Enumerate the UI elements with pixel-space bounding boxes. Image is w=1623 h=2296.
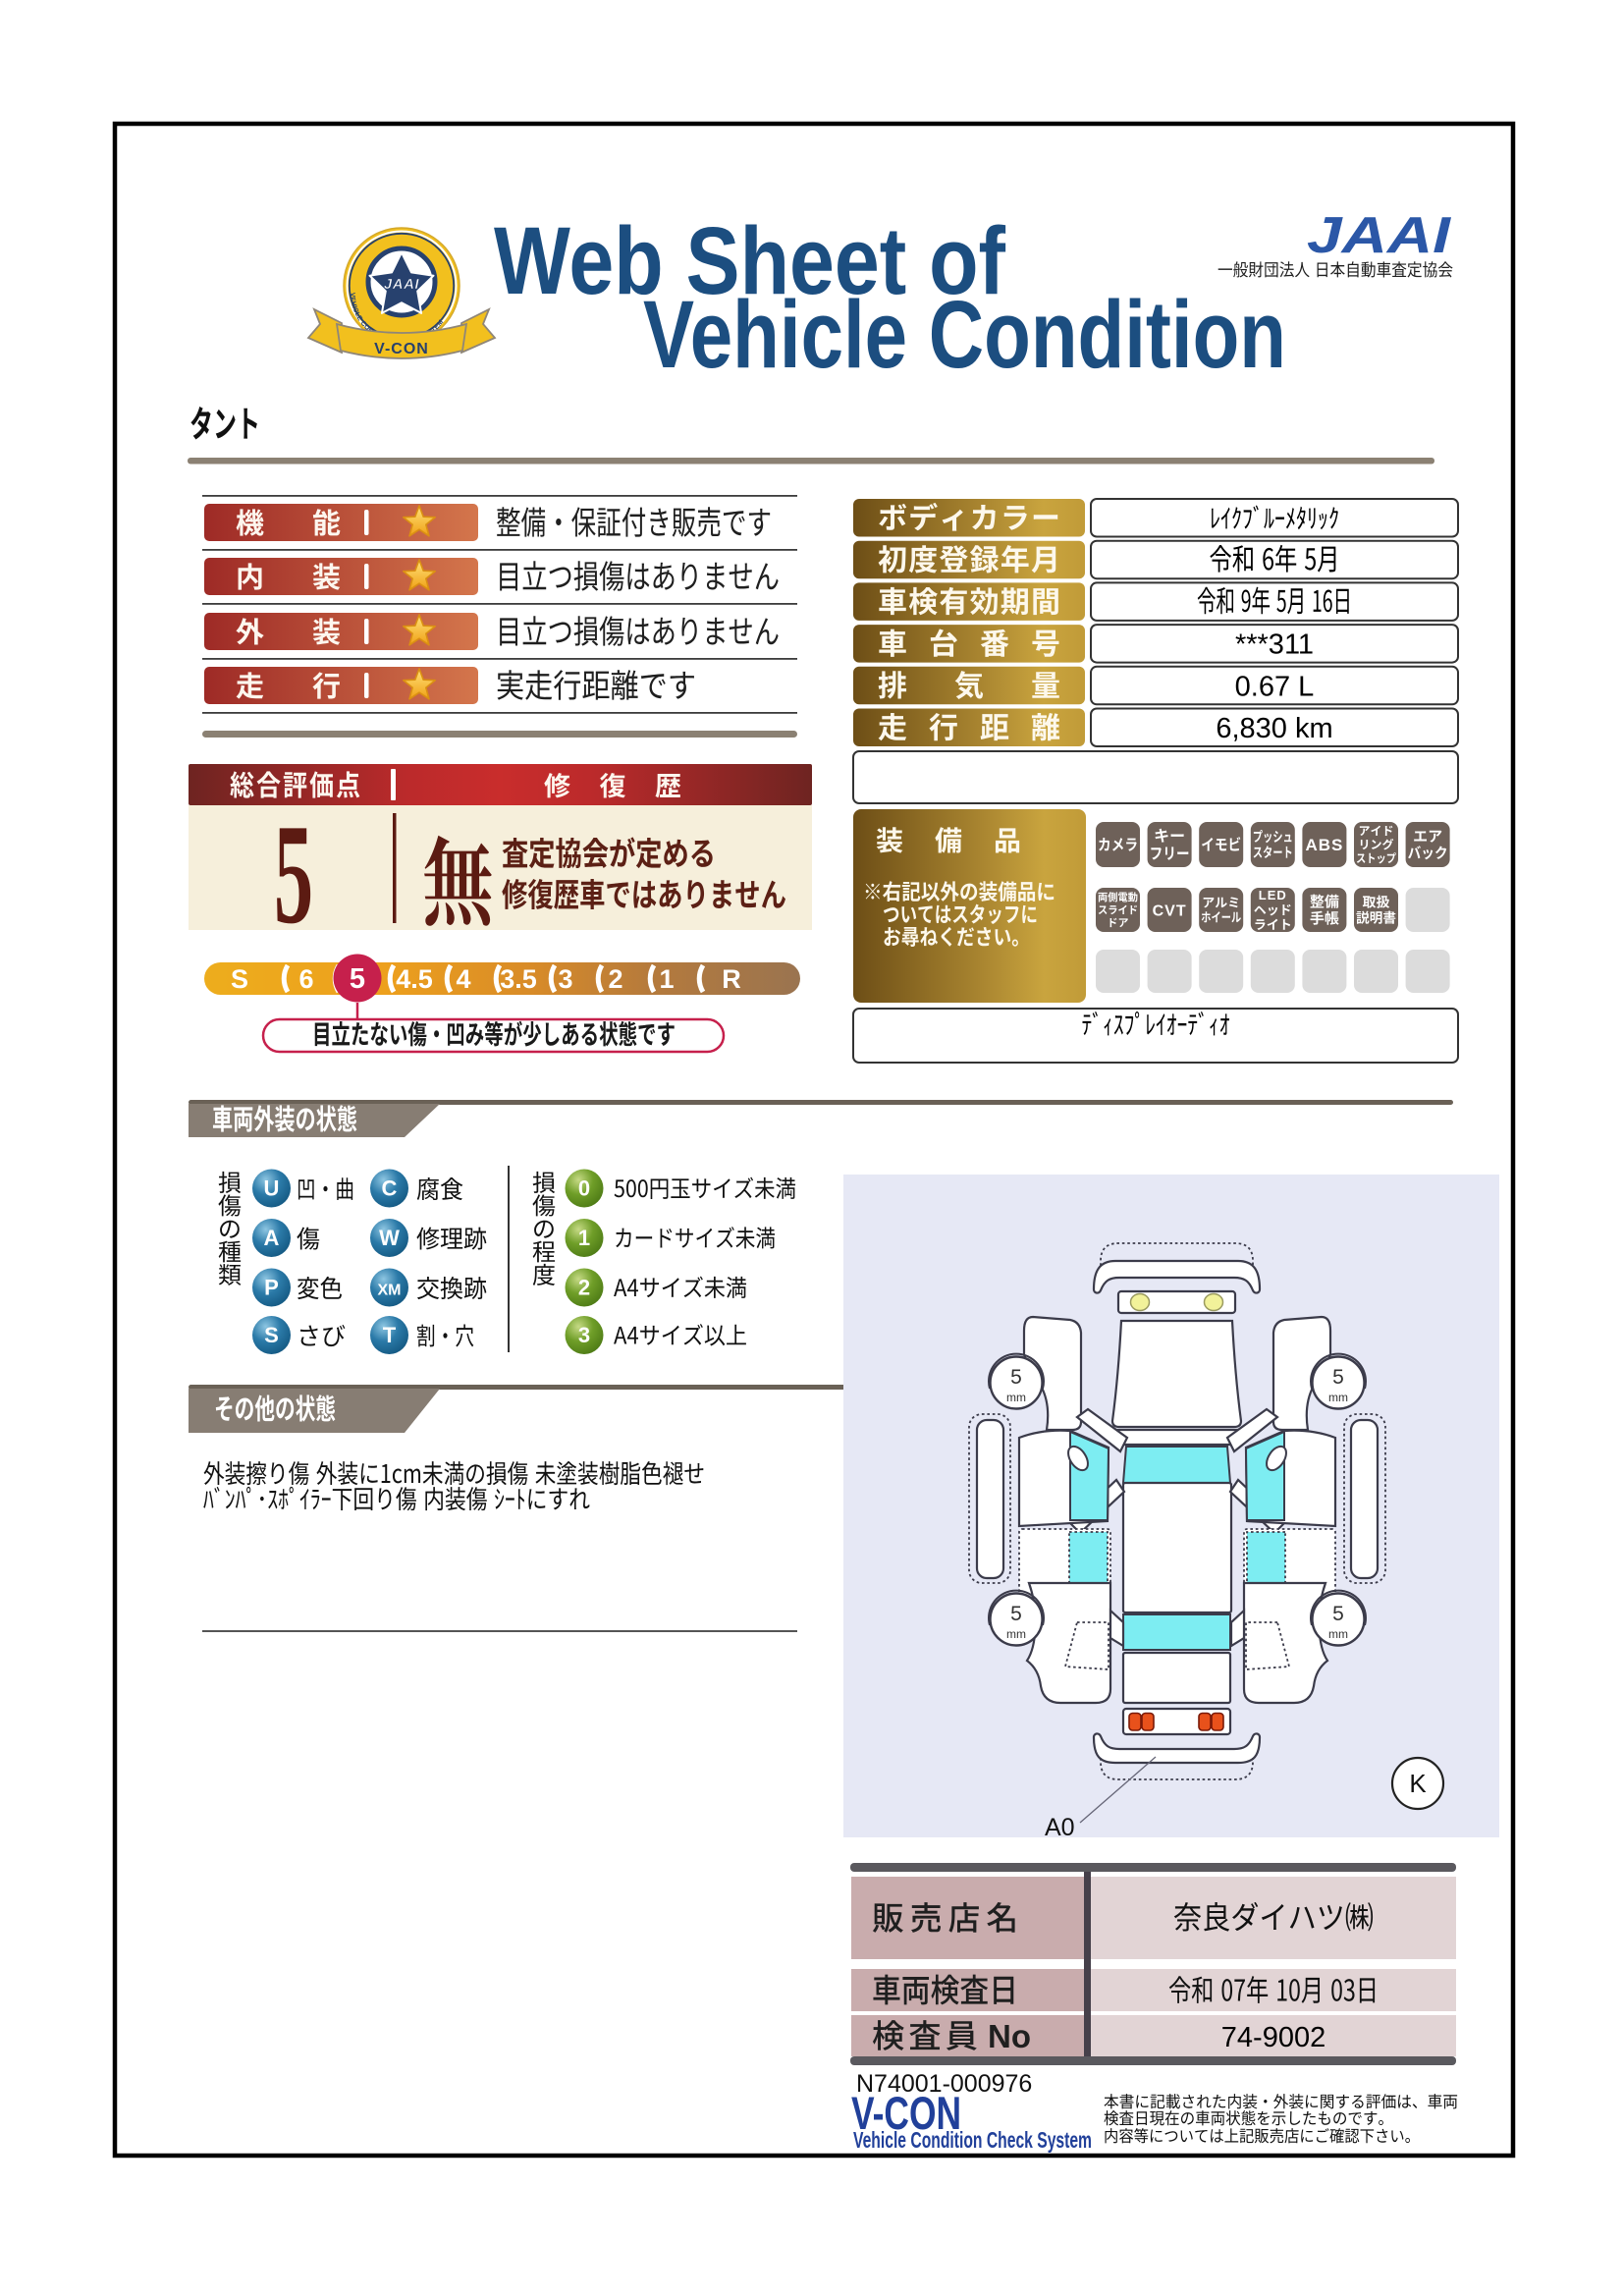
svg-text:LED: LED <box>1259 888 1287 902</box>
svg-text:mm: mm <box>1328 1391 1348 1404</box>
svg-text:ABS: ABS <box>1305 836 1343 854</box>
svg-text:CVT: CVT <box>1153 902 1187 919</box>
svg-text:R: R <box>722 964 741 994</box>
svg-text:4: 4 <box>456 964 470 994</box>
svg-text:3: 3 <box>558 964 572 994</box>
svg-text:mm: mm <box>1006 1391 1026 1404</box>
svg-text:5: 5 <box>1332 1366 1344 1389</box>
svg-text:JAAI: JAAI <box>384 276 420 293</box>
svg-text:5: 5 <box>274 795 313 954</box>
svg-text:3.5: 3.5 <box>500 964 537 994</box>
svg-text:U: U <box>264 1176 280 1201</box>
svg-text:5: 5 <box>350 963 365 995</box>
svg-text:1: 1 <box>578 1226 590 1250</box>
svg-text:Vehicle Condition Check System: Vehicle Condition Check System <box>853 2127 1092 2153</box>
svg-text:P: P <box>264 1276 279 1300</box>
svg-text:W: W <box>379 1226 400 1250</box>
svg-text:***311: ***311 <box>1235 629 1314 661</box>
svg-text:mm: mm <box>1006 1627 1026 1641</box>
svg-text:Vehicle Condition: Vehicle Condition <box>643 281 1286 388</box>
svg-text:mm: mm <box>1328 1627 1348 1641</box>
svg-text:T: T <box>383 1323 397 1347</box>
svg-text:1: 1 <box>659 964 674 994</box>
svg-text:S: S <box>264 1323 279 1347</box>
svg-text:3: 3 <box>578 1323 590 1347</box>
svg-text:K: K <box>1409 1769 1427 1798</box>
svg-text:V-CON: V-CON <box>374 341 429 357</box>
svg-text:A: A <box>264 1226 280 1250</box>
svg-text:5: 5 <box>1010 1366 1022 1389</box>
svg-text:C: C <box>382 1176 398 1201</box>
svg-text:2: 2 <box>608 964 622 994</box>
svg-text:XM: XM <box>378 1283 402 1299</box>
svg-text:5: 5 <box>1332 1603 1344 1625</box>
svg-text:S: S <box>231 964 248 994</box>
svg-text:A0: A0 <box>1045 1814 1075 1841</box>
svg-text:2: 2 <box>578 1276 590 1300</box>
svg-text:74-9002: 74-9002 <box>1221 2022 1325 2053</box>
svg-text:4.5: 4.5 <box>396 964 433 994</box>
svg-text:0.67 L: 0.67 L <box>1235 671 1315 702</box>
svg-text:6,830 km: 6,830 km <box>1216 713 1332 744</box>
svg-text:6: 6 <box>298 964 313 994</box>
svg-text:5: 5 <box>1010 1603 1022 1625</box>
svg-text:JAAI: JAAI <box>1307 207 1452 264</box>
svg-text:No: No <box>988 2018 1031 2054</box>
svg-text:0: 0 <box>578 1176 590 1201</box>
